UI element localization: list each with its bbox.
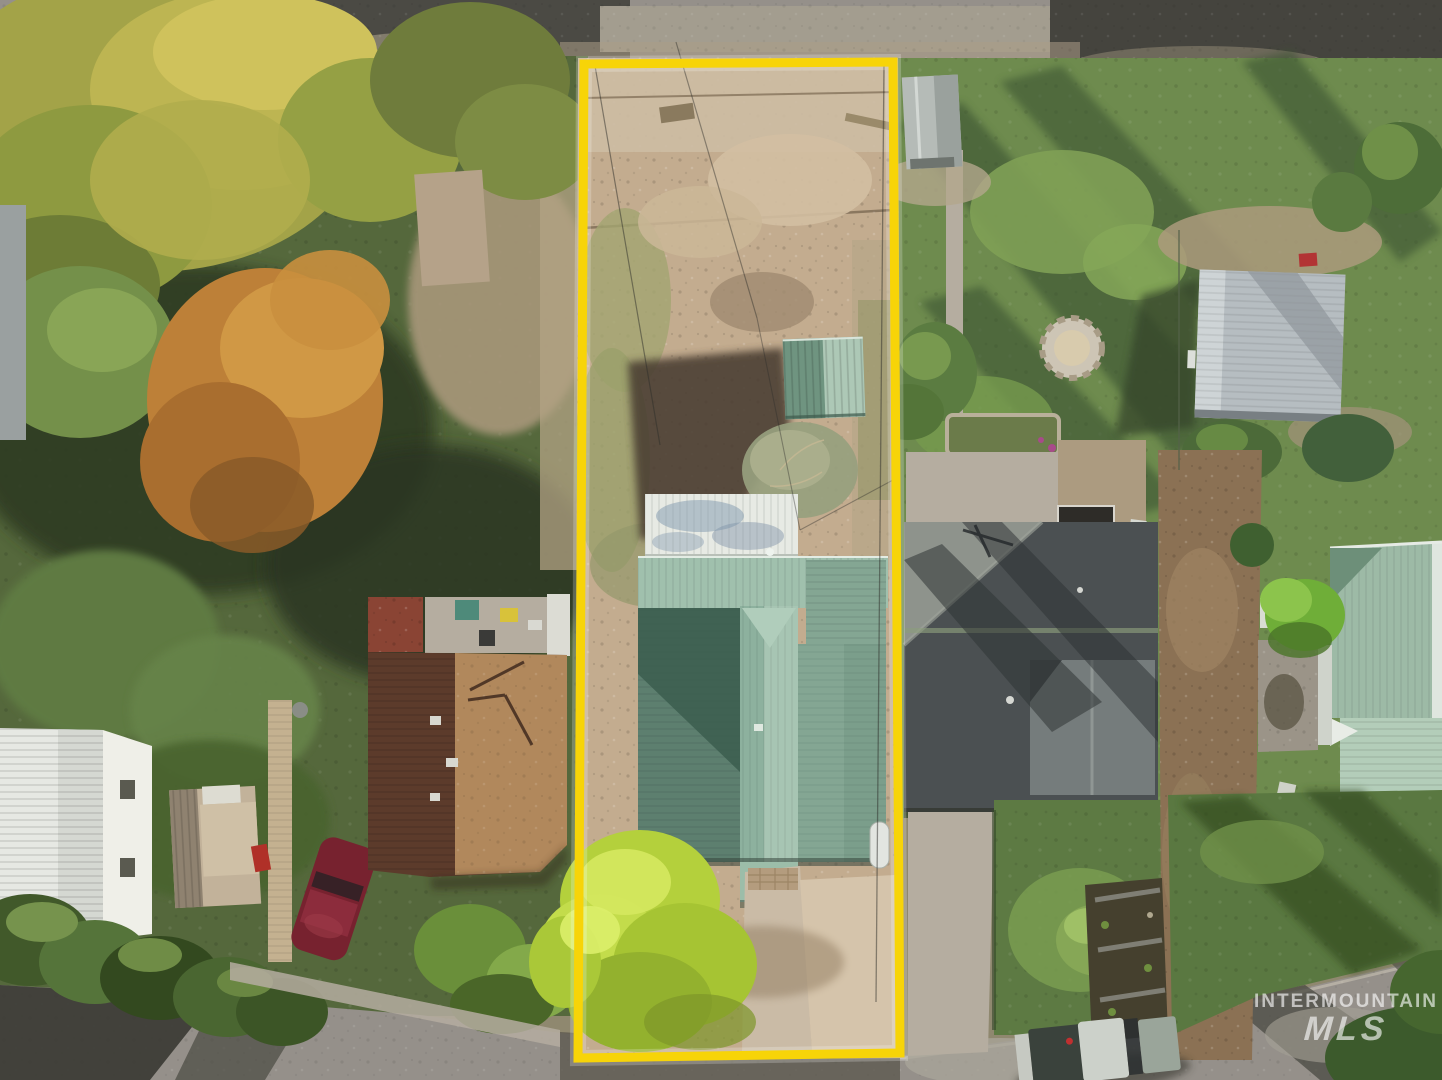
stairwell bbox=[1058, 506, 1114, 524]
garden-bed bbox=[1085, 878, 1168, 1042]
brown-roof-house bbox=[368, 594, 570, 890]
driveway bbox=[908, 812, 994, 1056]
watermark-brand: INTERMOUNTAIN bbox=[1254, 992, 1438, 1011]
roof-vent bbox=[754, 724, 763, 731]
hood bbox=[1138, 1016, 1181, 1074]
roof-vent bbox=[766, 548, 774, 556]
small-gray-shed bbox=[902, 75, 963, 170]
white-carport-roof bbox=[645, 494, 798, 556]
aerial-listing-photo: INTERMOUNTAIN MLS bbox=[0, 0, 1442, 1080]
white-post bbox=[1187, 350, 1196, 368]
yellow-box bbox=[500, 608, 518, 622]
propane-tank bbox=[870, 822, 889, 868]
truck-cab bbox=[1077, 1017, 1129, 1080]
green-shed bbox=[783, 337, 866, 420]
watermark-mls: MLS bbox=[1253, 1012, 1439, 1046]
north-patio bbox=[906, 452, 1058, 528]
left-yard-shed bbox=[414, 170, 490, 286]
grill bbox=[479, 630, 495, 646]
utility-pole-top bbox=[292, 702, 308, 718]
purple-flowers bbox=[1048, 444, 1056, 452]
tan-storage-shed bbox=[169, 784, 261, 908]
barn-window bbox=[120, 780, 135, 799]
far-left-building bbox=[0, 205, 26, 440]
mls-watermark: INTERMOUNTAIN MLS bbox=[1254, 992, 1438, 1046]
stone-planter bbox=[947, 415, 1059, 455]
truck-bed bbox=[1028, 1024, 1086, 1080]
white-trailer bbox=[547, 594, 570, 656]
barn-window bbox=[120, 858, 135, 877]
porch-roof bbox=[1318, 645, 1332, 745]
paver-patch bbox=[748, 868, 798, 890]
aerial-photo-canvas bbox=[0, 0, 1442, 1080]
red-item bbox=[1299, 253, 1318, 267]
teal-box bbox=[455, 600, 479, 620]
